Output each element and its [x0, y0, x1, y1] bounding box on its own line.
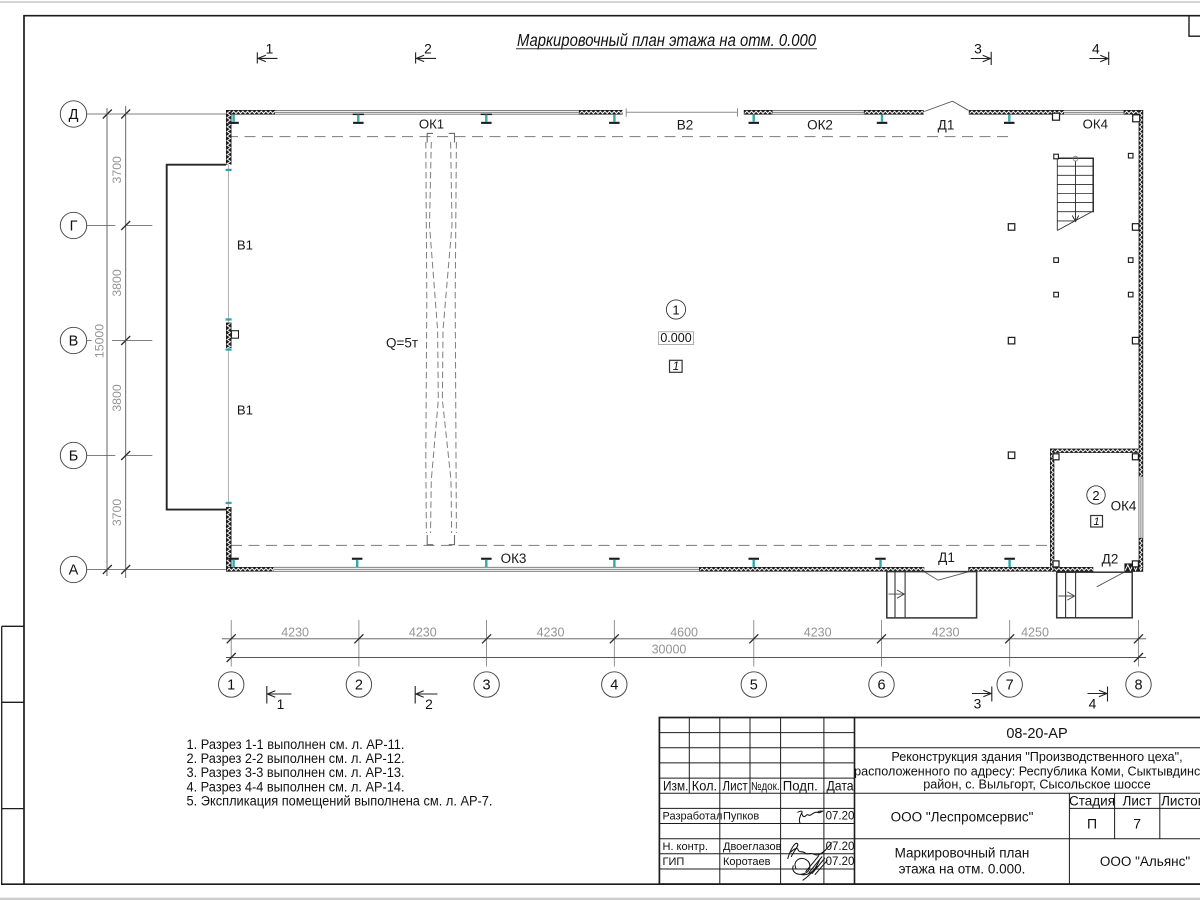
svg-text:Кол.: Кол.	[692, 778, 717, 794]
svg-text:Маркировочный план этажа на от: Маркировочный план этажа на отм. 0.000	[517, 30, 816, 50]
svg-text:07.20: 07.20	[826, 810, 855, 822]
svg-text:Г: Г	[70, 219, 78, 235]
svg-text:07.20: 07.20	[826, 856, 855, 868]
svg-text:этажа на отм. 0.000.: этажа на отм. 0.000.	[899, 861, 1026, 876]
svg-text:5: 5	[750, 678, 758, 694]
svg-text:1: 1	[266, 42, 274, 57]
svg-text:4230: 4230	[537, 626, 565, 640]
svg-text:07.20: 07.20	[826, 841, 855, 853]
svg-text:ОК1: ОК1	[419, 117, 444, 132]
svg-text:2. Разрез 2-2 выполнен см. л.: 2. Разрез 2-2 выполнен см. л. АР-12.	[187, 751, 405, 766]
svg-text:4250: 4250	[1021, 626, 1049, 640]
svg-text:3800: 3800	[110, 269, 124, 297]
svg-text:Листов: Листов	[1161, 793, 1200, 808]
svg-text:3800: 3800	[110, 384, 124, 412]
svg-text:3: 3	[974, 696, 982, 711]
svg-text:3: 3	[483, 678, 491, 694]
svg-text:2: 2	[425, 697, 433, 712]
svg-text:П: П	[1087, 816, 1097, 832]
svg-text:Д1: Д1	[938, 117, 955, 132]
svg-text:Подп.: Подп.	[783, 778, 818, 794]
svg-text:Двоеглазов: Двоеглазов	[723, 841, 782, 853]
svg-text:Коротаев: Коротаев	[723, 856, 771, 868]
svg-text:ОК2: ОК2	[807, 117, 833, 132]
svg-text:6: 6	[877, 678, 885, 694]
svg-text:В1: В1	[237, 403, 253, 418]
svg-text:Д1: Д1	[938, 550, 955, 565]
svg-text:4230: 4230	[409, 626, 437, 640]
svg-text:4230: 4230	[804, 626, 832, 640]
svg-text:2: 2	[424, 42, 432, 57]
svg-text:4: 4	[1089, 696, 1097, 711]
svg-text:Q=5т: Q=5т	[386, 336, 418, 351]
svg-text:4. Разрез 4-4 выполнен см. л.: 4. Разрез 4-4 выполнен см. л. АР-14.	[187, 779, 405, 794]
svg-text:Маркировочный план: Маркировочный план	[895, 846, 1030, 861]
svg-text:Изм.: Изм.	[663, 778, 688, 794]
svg-text:1: 1	[672, 302, 679, 317]
svg-text:район, с. Выльгорт, Сысольское: район, с. Выльгорт, Сысольское шоссе	[923, 778, 1150, 792]
svg-text:2: 2	[355, 678, 363, 694]
svg-text:ООО "Альянс": ООО "Альянс"	[1100, 854, 1190, 869]
svg-text:ОК3: ОК3	[501, 551, 527, 566]
svg-text:2: 2	[1092, 488, 1099, 503]
svg-text:8: 8	[1134, 678, 1142, 694]
svg-text:4230: 4230	[932, 626, 960, 640]
svg-text:3700: 3700	[110, 499, 124, 527]
svg-text:Реконструкция здания "Производ: Реконструкция здания "Производственного …	[891, 750, 1182, 764]
svg-text:расположенного по адресу: Респ: расположенного по адресу: Республика Ком…	[854, 765, 1200, 779]
svg-text:3700: 3700	[110, 156, 124, 184]
svg-text:3. Разрез 3-3 выполнен см. л.: 3. Разрез 3-3 выполнен см. л. АР-13.	[187, 765, 405, 780]
svg-text:08-20-АР: 08-20-АР	[1006, 726, 1067, 742]
svg-text:4: 4	[610, 678, 618, 694]
svg-text:Пупков: Пупков	[723, 811, 759, 823]
svg-text:ОК4: ОК4	[1111, 499, 1137, 514]
svg-text:Разработал: Разработал	[663, 811, 723, 823]
svg-text:А: А	[69, 563, 79, 579]
svg-text:Стадия: Стадия	[1069, 793, 1115, 808]
svg-text:ООО "Леспромсервис": ООО "Леспромсервис"	[891, 810, 1034, 825]
svg-text:№док.: №док.	[751, 781, 780, 793]
svg-text:1. Разрез 1-1 выполнен см. л.: 1. Разрез 1-1 выполнен см. л. АР-11.	[187, 737, 405, 752]
svg-text:15000: 15000	[93, 324, 107, 358]
svg-text:1: 1	[1093, 516, 1099, 528]
svg-text:Дата: Дата	[827, 778, 854, 794]
svg-text:4600: 4600	[670, 626, 698, 640]
svg-text:4: 4	[1092, 41, 1100, 56]
svg-text:ГИП: ГИП	[663, 856, 685, 868]
svg-text:5. Экспликация помещений выпол: 5. Экспликация помещений выполнена см. л…	[187, 794, 493, 809]
svg-text:Д2: Д2	[1102, 551, 1119, 566]
svg-text:ОК4: ОК4	[1083, 116, 1108, 131]
svg-text:1: 1	[227, 678, 235, 694]
svg-text:В2: В2	[677, 117, 694, 132]
svg-text:Б: Б	[69, 449, 79, 465]
svg-text:7: 7	[1133, 816, 1141, 832]
svg-text:В: В	[69, 334, 79, 350]
svg-text:0.000: 0.000	[660, 331, 691, 345]
svg-text:Лист: Лист	[722, 778, 748, 794]
svg-text:7: 7	[1006, 678, 1014, 694]
svg-text:Лист: Лист	[1123, 793, 1152, 808]
svg-text:Н. контр.: Н. контр.	[663, 841, 708, 853]
svg-text:3: 3	[974, 41, 982, 56]
svg-text:30000: 30000	[652, 643, 687, 657]
svg-text:В1: В1	[237, 237, 253, 252]
svg-text:1: 1	[673, 361, 679, 373]
svg-text:Д: Д	[69, 107, 79, 123]
svg-text:4230: 4230	[281, 626, 309, 640]
svg-text:1: 1	[277, 697, 285, 712]
